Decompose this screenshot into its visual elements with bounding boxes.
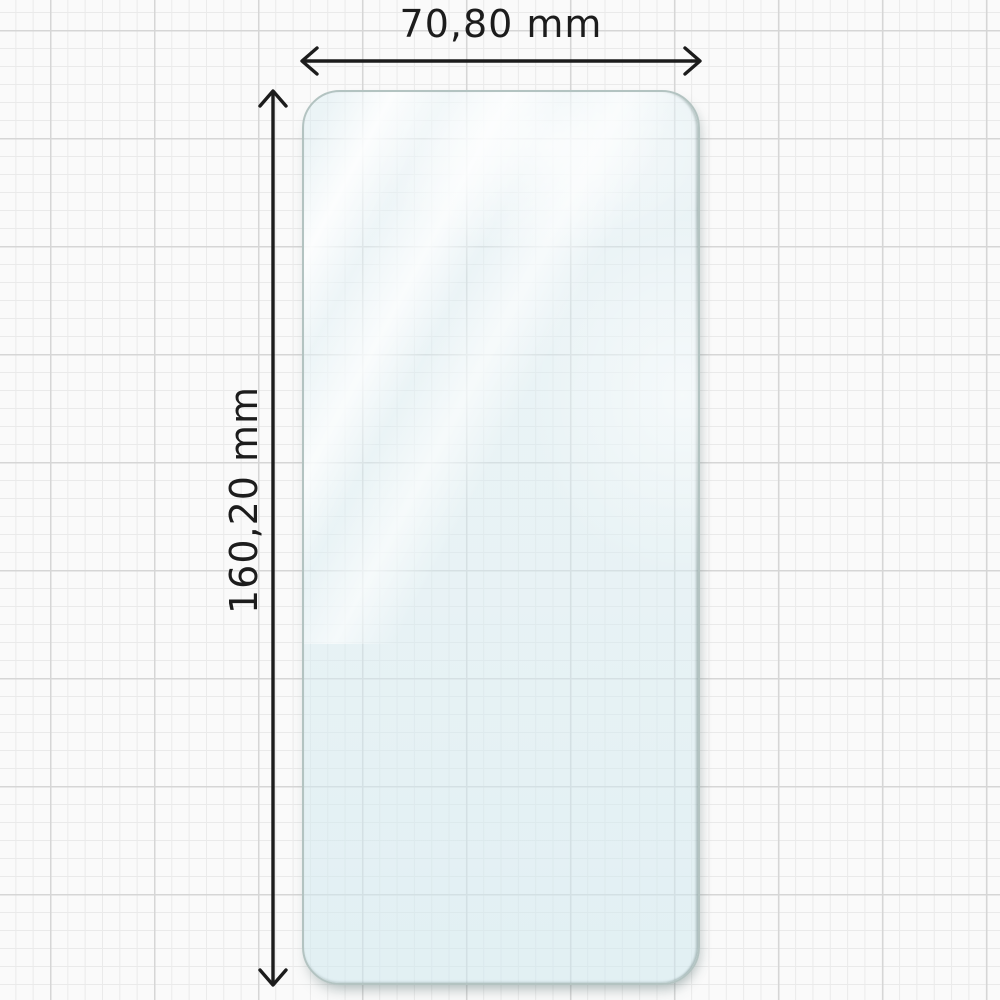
graph-paper-background: 70,80 mm 160,20 mm	[0, 0, 1000, 1000]
screen-protector-sheet	[302, 90, 700, 985]
width-dimension-arrow	[302, 48, 700, 74]
width-dimension-label: 70,80 mm	[302, 2, 700, 46]
height-dimension-label: 160,20 mm	[222, 386, 266, 614]
reflection-highlight	[304, 92, 698, 983]
